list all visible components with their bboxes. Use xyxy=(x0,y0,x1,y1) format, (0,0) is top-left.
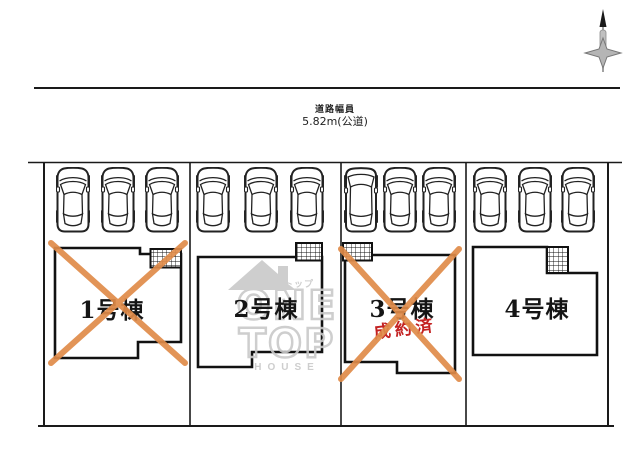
unit-1-balcony-hatch xyxy=(151,249,182,268)
car-icon xyxy=(101,168,135,232)
watermark-word-house: HOUSE xyxy=(224,362,350,373)
car-icon xyxy=(518,168,552,232)
watermark-word-top: TOP xyxy=(224,324,350,364)
site-plan-drawing xyxy=(0,0,640,466)
site-plan-canvas: ワントップ ONE TOP HOUSE 道路幅員 5.82m(公道) 1号棟 2… xyxy=(0,0,640,466)
unit-2-label: 2号棟 xyxy=(233,290,298,324)
car-icon xyxy=(473,168,507,232)
van-icon xyxy=(344,168,378,231)
car-icon xyxy=(244,168,278,232)
car-icon xyxy=(290,168,324,232)
car-icon xyxy=(56,168,90,232)
car-icon xyxy=(422,168,456,232)
car-icon xyxy=(145,168,179,232)
car-icon xyxy=(383,168,417,232)
unit-4-balcony-hatch xyxy=(547,247,568,273)
car-icon xyxy=(196,168,230,232)
unit-1-label: 1号棟 xyxy=(79,291,144,325)
compass-north-icon xyxy=(585,9,621,72)
road-width-label: 5.82m(公道) xyxy=(302,113,368,129)
unit-4-label: 4号棟 xyxy=(504,290,569,324)
car-icon xyxy=(561,168,595,232)
